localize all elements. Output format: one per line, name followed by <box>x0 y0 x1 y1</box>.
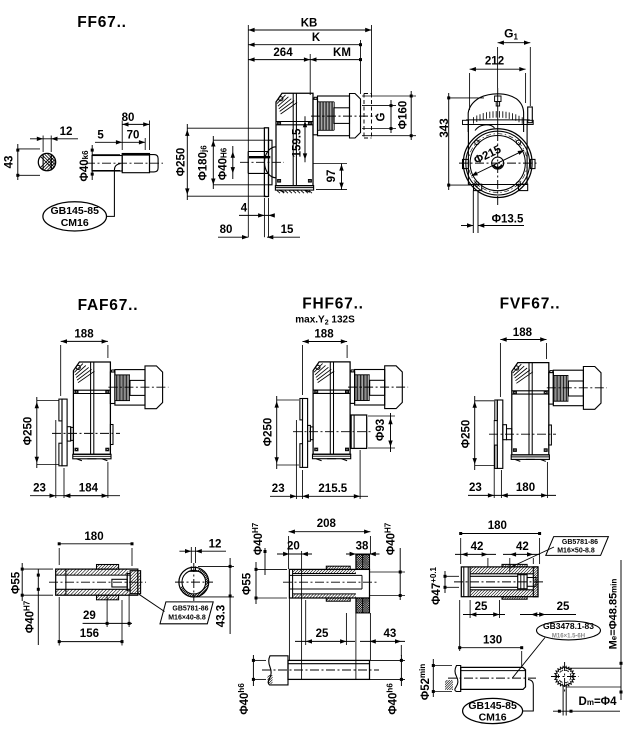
svg-text:Φ250: Φ250 <box>263 418 275 447</box>
svg-text:Me=Φ48.85min: Me=Φ48.85min <box>608 578 620 649</box>
svg-text:FF67..: FF67.. <box>77 14 127 31</box>
svg-text:FHF67..: FHF67.. <box>302 296 364 313</box>
svg-text:KB: KB <box>301 18 318 30</box>
svg-text:5: 5 <box>97 130 104 142</box>
svg-text:184: 184 <box>79 483 99 495</box>
svg-text:42: 42 <box>516 541 529 553</box>
svg-text:Φ13.5: Φ13.5 <box>492 214 524 226</box>
svg-text:4: 4 <box>241 203 248 215</box>
svg-text:15: 15 <box>281 224 294 236</box>
svg-text:G: G <box>376 112 388 121</box>
svg-text:29: 29 <box>83 610 96 622</box>
svg-text:GB145-85: GB145-85 <box>50 205 99 217</box>
svg-text:M16×50-8.8: M16×50-8.8 <box>557 548 595 555</box>
svg-text:264: 264 <box>273 47 293 59</box>
svg-text:23: 23 <box>33 483 46 495</box>
svg-text:Φ160: Φ160 <box>398 101 410 130</box>
svg-text:Φ40H6: Φ40H6 <box>218 147 230 180</box>
svg-text:Φ250: Φ250 <box>176 148 188 177</box>
svg-text:CM16: CM16 <box>61 217 89 229</box>
svg-text:FVF67..: FVF67.. <box>500 296 561 313</box>
svg-text:43.3: 43.3 <box>216 605 228 627</box>
svg-text:43: 43 <box>4 156 16 169</box>
svg-text:180: 180 <box>488 520 507 532</box>
svg-text:25: 25 <box>316 628 329 640</box>
svg-text:GB3478.1-83: GB3478.1-83 <box>543 621 594 631</box>
svg-text:K: K <box>312 32 321 44</box>
svg-text:180: 180 <box>84 531 103 543</box>
svg-text:80: 80 <box>220 224 233 236</box>
svg-text:188: 188 <box>314 329 334 341</box>
svg-text:188: 188 <box>74 329 94 341</box>
svg-text:343: 343 <box>439 118 451 137</box>
svg-text:Φ55: Φ55 <box>11 571 23 594</box>
svg-text:GB5781-86: GB5781-86 <box>562 539 598 546</box>
svg-text:KM: KM <box>333 47 351 59</box>
svg-text:23: 23 <box>469 482 482 494</box>
svg-text:180: 180 <box>516 482 535 494</box>
svg-text:97: 97 <box>326 170 338 183</box>
svg-text:Φ180j6: Φ180j6 <box>198 145 210 181</box>
svg-text:208: 208 <box>317 518 337 530</box>
svg-text:Φ55: Φ55 <box>242 572 254 595</box>
svg-text:23: 23 <box>272 483 285 495</box>
svg-text:70: 70 <box>127 130 140 142</box>
svg-text:CM16: CM16 <box>479 712 507 724</box>
svg-text:43: 43 <box>384 628 397 640</box>
svg-text:42: 42 <box>471 541 484 553</box>
svg-text:GB145-85: GB145-85 <box>468 700 517 712</box>
svg-text:188: 188 <box>513 327 533 339</box>
svg-text:Φ250: Φ250 <box>461 420 473 449</box>
svg-text:212: 212 <box>485 56 504 68</box>
svg-text:Φ93: Φ93 <box>375 419 387 441</box>
svg-text:80: 80 <box>122 112 135 124</box>
svg-text:Φ40k6: Φ40k6 <box>79 150 91 182</box>
svg-text:M16×40-8.8: M16×40-8.8 <box>168 615 206 622</box>
svg-text:130: 130 <box>483 635 502 647</box>
svg-text:12: 12 <box>209 539 222 551</box>
svg-text:25: 25 <box>557 601 570 613</box>
svg-text:M16×1.5-6H: M16×1.5-6H <box>552 634 585 640</box>
svg-text:GB5781-86: GB5781-86 <box>172 606 208 613</box>
svg-text:12: 12 <box>60 126 73 138</box>
svg-text:38: 38 <box>356 541 369 553</box>
svg-text:Dm=Φ4: Dm=Φ4 <box>579 696 618 708</box>
svg-text:25: 25 <box>475 601 488 613</box>
svg-text:Φ250: Φ250 <box>23 417 35 446</box>
svg-text:159.5: 159.5 <box>292 128 304 157</box>
svg-text:156: 156 <box>80 628 99 640</box>
svg-text:215.5: 215.5 <box>318 483 347 495</box>
svg-text:20: 20 <box>287 541 300 553</box>
svg-text:FAF67..: FAF67.. <box>78 297 139 314</box>
